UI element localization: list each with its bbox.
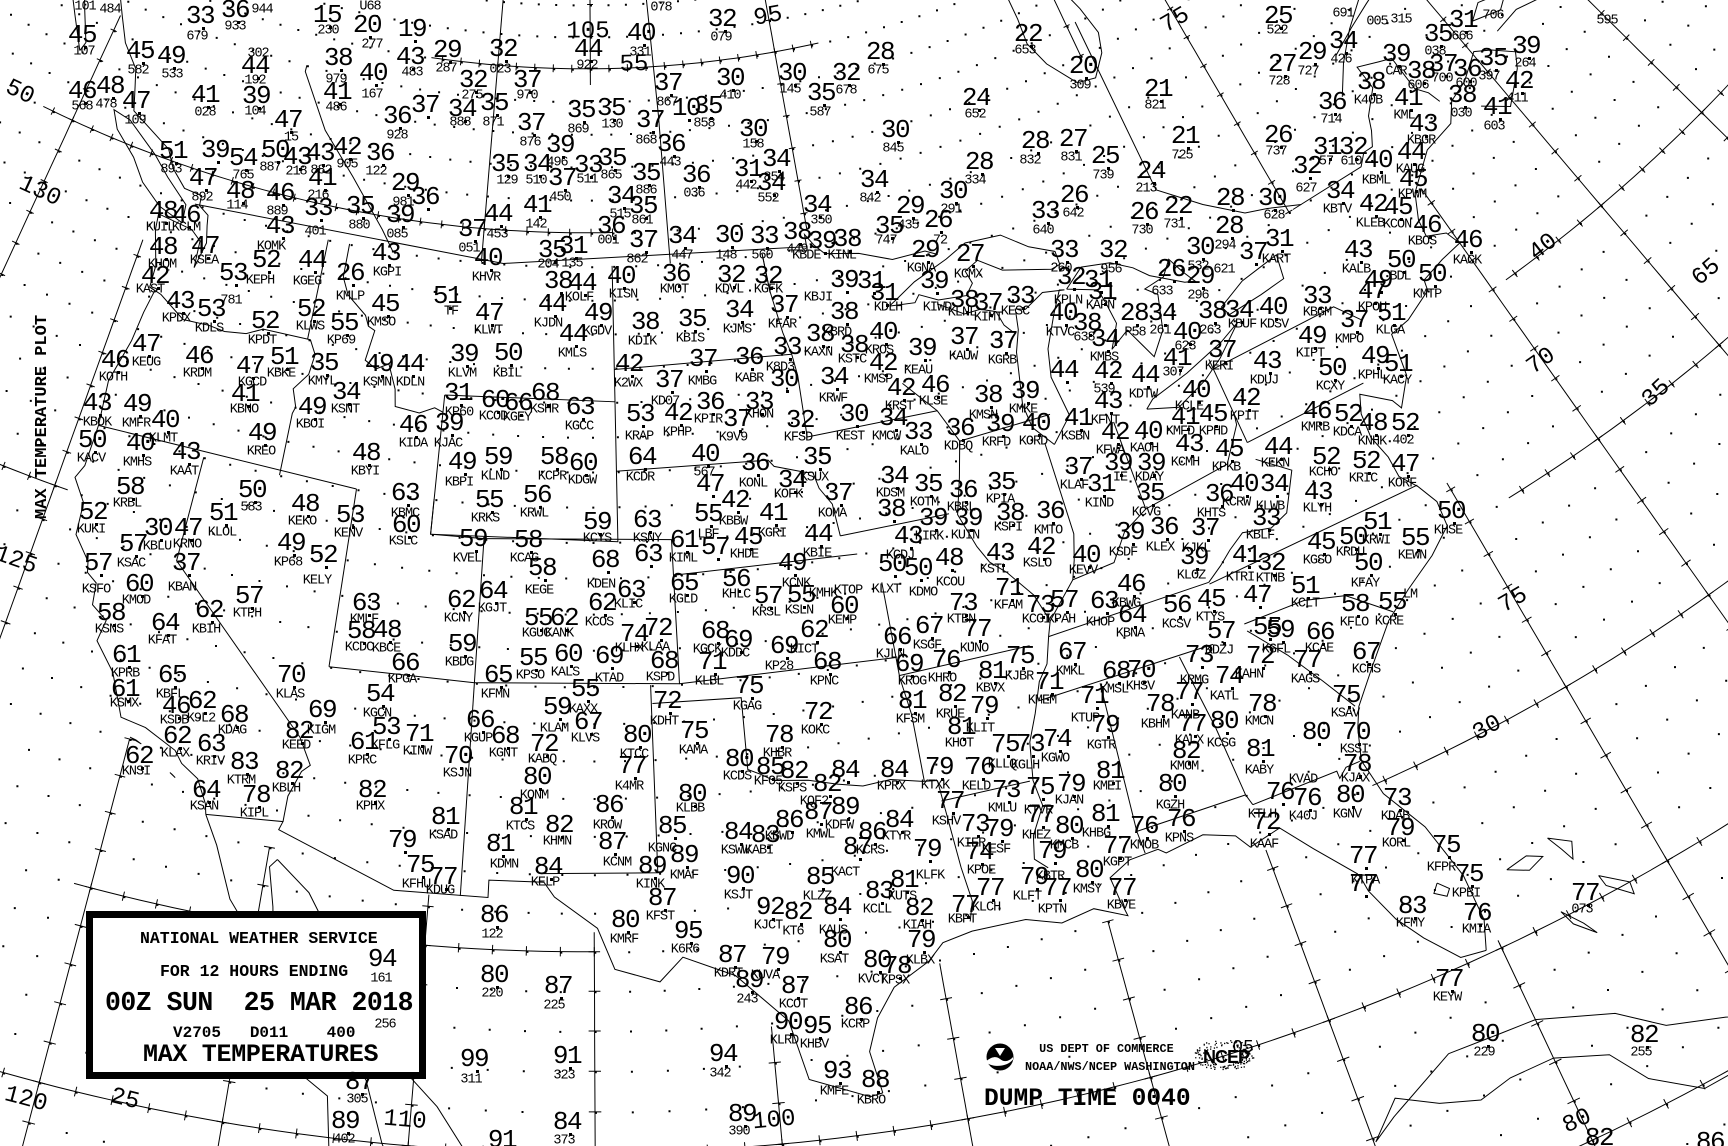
svg-text:120: 120 [1,1081,50,1118]
svg-text:110: 110 [382,1106,427,1136]
svg-text:75: 75 [1494,582,1532,620]
svg-text:125: 125 [0,541,41,581]
svg-text:30: 30 [1468,710,1506,748]
svg-text:95: 95 [752,1,785,33]
svg-text:25: 25 [108,1083,142,1116]
svg-text:100: 100 [751,1105,797,1136]
svg-text:65: 65 [1687,253,1726,292]
svg-text:35: 35 [1637,374,1676,413]
svg-text:50: 50 [1,74,39,111]
svg-text:70: 70 [1522,342,1561,381]
svg-text:40: 40 [1524,228,1563,267]
svg-text:130: 130 [14,170,65,213]
svg-text:75: 75 [1156,2,1194,40]
svg-text:NCEP: NCEP [1203,1047,1250,1067]
